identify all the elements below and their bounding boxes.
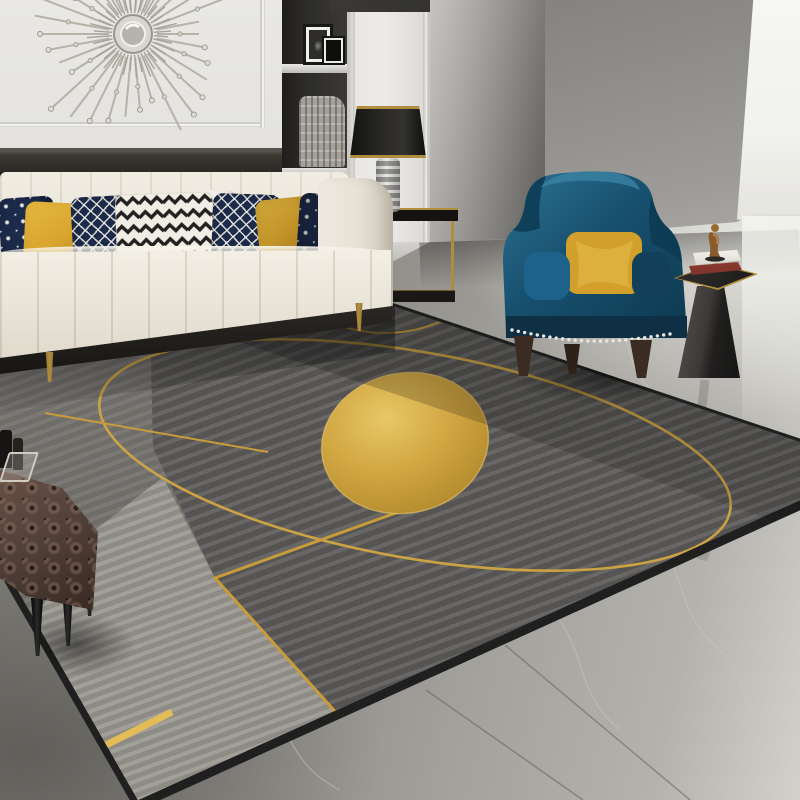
console-shelf xyxy=(389,290,455,302)
living-room-product-photo: Product photo of a modern living room sh… xyxy=(0,0,800,800)
floor-window-reflection xyxy=(742,216,800,446)
blue-wingback-chair xyxy=(470,160,710,390)
console-leg xyxy=(451,221,454,295)
table-lamp-shade xyxy=(350,106,426,158)
bronze-figurine xyxy=(698,222,734,262)
